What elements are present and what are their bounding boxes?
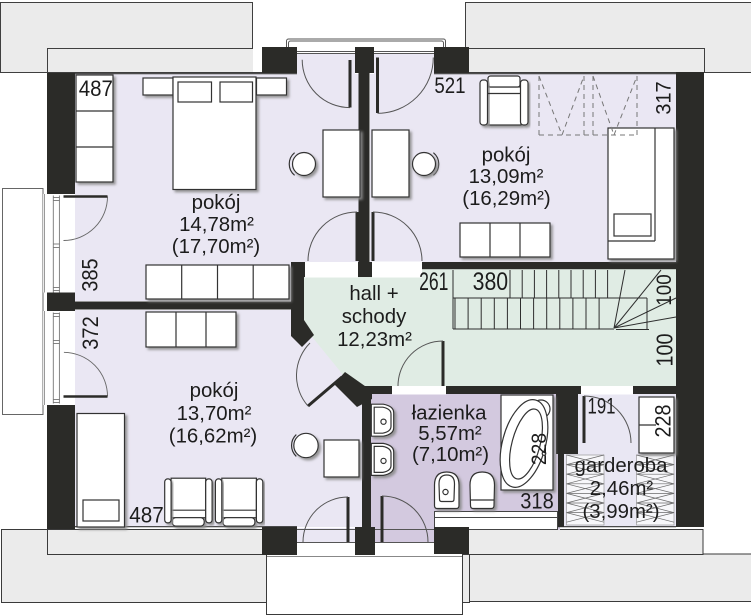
svg-text:(17,70m²): (17,70m²) [172,236,260,258]
svg-text:228: 228 [651,405,676,438]
svg-text:100: 100 [652,334,678,367]
svg-text:hall +: hall + [349,283,398,305]
svg-text:schody: schody [342,306,407,328]
svg-text:(16,29m²): (16,29m²) [462,188,550,210]
svg-text:12,23m²: 12,23m² [337,329,412,351]
svg-text:100: 100 [651,274,676,305]
svg-text:pokój: pokój [482,145,531,167]
svg-text:(3,99m²): (3,99m²) [582,501,659,523]
svg-text:261: 261 [419,268,448,296]
svg-text:(16,62m²): (16,62m²) [169,426,257,448]
svg-text:372: 372 [78,316,103,350]
svg-text:487: 487 [129,503,164,528]
svg-text:5,57m²: 5,57m² [418,423,482,445]
svg-text:łazienka: łazienka [412,403,487,425]
svg-text:(7,10m²): (7,10m²) [412,444,489,466]
svg-text:487: 487 [79,76,113,101]
svg-text:385: 385 [78,258,103,291]
svg-text:521: 521 [434,73,465,98]
svg-text:317: 317 [651,81,675,114]
svg-text:garderoba: garderoba [575,455,669,477]
svg-text:pokój: pokój [192,192,241,214]
svg-text:191: 191 [588,394,616,419]
svg-text:228: 228 [527,433,551,465]
svg-text:380: 380 [473,268,509,296]
svg-text:14,78m²: 14,78m² [179,214,254,236]
svg-text:318: 318 [520,489,554,514]
svg-text:13,70m²: 13,70m² [177,403,252,425]
svg-text:pokój: pokój [190,380,239,402]
svg-text:13,09m²: 13,09m² [469,166,544,188]
svg-text:2,46m²: 2,46m² [590,478,654,500]
